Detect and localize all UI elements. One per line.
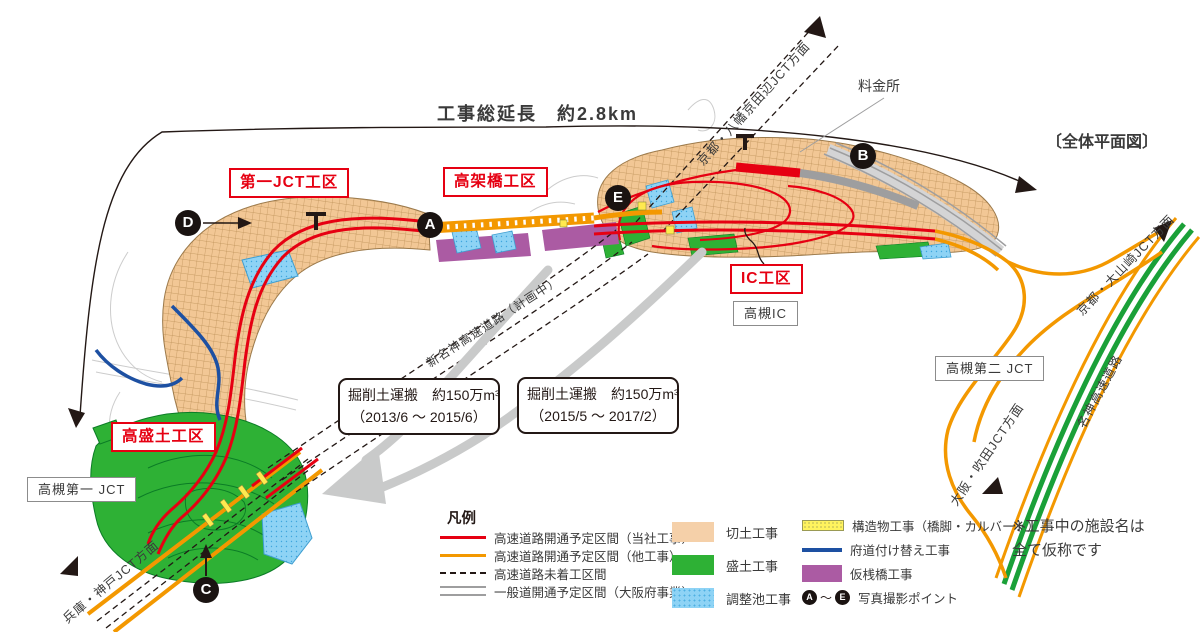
arrow-hyogo-kobe [60, 556, 78, 576]
callout-excavation-1: 掘削土運搬 約150万m³ （2013/6 ～ 2015/6） [338, 378, 500, 435]
plan-view-title: 〔全体平面図〕 [1046, 128, 1158, 152]
note-line-2: 全て仮称です [1012, 539, 1145, 563]
facility-takatsuki-daini-jct: 高槻第二 JCT [935, 356, 1044, 381]
tilde: ～ [820, 589, 832, 606]
facility-takatsuki-ic: 高槻IC [733, 301, 798, 326]
legend-line-items: 高速道路開通予定区間（当社工事） 高速道路開通予定区間（他工事） 高速道路未着工… [440, 528, 694, 600]
legend-label: 一般道開通予定区間（大阪府事業） [494, 582, 694, 601]
legend-row-pref-road: 府道付け替え工事 [802, 540, 1040, 559]
legend-area-items: 切土工事 盛土工事 調整池工事 [672, 522, 791, 621]
soil-arrow-head [322, 446, 386, 504]
legend-row-fill-earth: 盛土工事 [672, 555, 791, 575]
legend-row-pond: 調整池工事 [672, 588, 791, 608]
legend-label: 高速道路開通予定区間（他工事） [494, 546, 682, 565]
zone-label-daiichi-jct: 第一JCT工区 [229, 168, 349, 198]
legend-row-temp-bridge: 仮桟橋工事 [802, 564, 1040, 583]
facility-takatsuki-daiichi-jct: 高槻第一 JCT [27, 477, 136, 502]
blue-patch-swatch [672, 588, 714, 608]
dashed-line-swatch [440, 572, 486, 574]
callout-period: （2013/6 ～ 2015/6） [348, 407, 490, 429]
callout-excavation-2: 掘削土運搬 約150万m³ （2015/5 ～ 2017/2） [517, 377, 679, 434]
toll-gate-label: 料金所 [858, 76, 900, 96]
photo-point-range: A ～ E [802, 589, 850, 606]
photo-point-d: D [175, 210, 201, 236]
tan-patch-swatch [672, 522, 714, 542]
total-length-label: 工事総延長 約2.8km [437, 100, 638, 126]
legend-label: 仮桟橋工事 [850, 564, 913, 583]
legend-label: 調整池工事 [726, 589, 791, 608]
legend-row-structure: 構造物工事（橋脚・カルバート） [802, 516, 1040, 535]
zone-label-embankment: 高盛土工区 [111, 422, 216, 452]
purple-patch-swatch [802, 565, 842, 582]
legend-label: 切土工事 [726, 523, 778, 542]
gray-line-swatch [440, 586, 486, 596]
arc-arrow-left [68, 408, 85, 428]
legend-row-other-work: 高速道路開通予定区間（他工事） [440, 546, 694, 564]
legend-note: ※工事中の施設名は 全て仮称です [1012, 515, 1145, 563]
photo-point-b: B [850, 143, 876, 169]
legend-label: 高速道路開通予定区間（当社工事） [494, 528, 694, 547]
photo-point-a: A [417, 212, 443, 238]
callout-text: 掘削土運搬 約150万m³ [348, 385, 490, 407]
construction-plan-map: 工事総延長 約2.8km 〔全体平面図〕 料金所 第一JCT工区 高架橋工区 I… [0, 0, 1200, 632]
arrow-osaka-suita [982, 477, 1003, 494]
red-line-swatch [440, 536, 486, 539]
photo-point-e-small: E [835, 590, 850, 605]
legend-label: 府道付け替え工事 [850, 540, 950, 559]
legend-header: 凡例 [447, 507, 476, 528]
legend-row-general-road: 一般道開通予定区間（大阪府事業） [440, 582, 694, 600]
legend-other-items: 構造物工事（橋脚・カルバート） 府道付け替え工事 仮桟橋工事 A ～ E 写真撮… [802, 516, 1040, 612]
yellow-bar-swatch [802, 520, 844, 531]
zone-label-ic: IC工区 [730, 264, 803, 294]
legend-row-cut-earth: 切土工事 [672, 522, 791, 542]
callout-period: （2015/5 ～ 2017/2） [527, 406, 669, 428]
photo-point-a-small: A [802, 590, 817, 605]
legend-row-unbuilt: 高速道路未着工区間 [440, 564, 694, 582]
legend-row-photo-points: A ～ E 写真撮影ポイント [802, 588, 1040, 607]
legend-label: 盛土工事 [726, 556, 778, 575]
note-line-1: ※工事中の施設名は [1012, 515, 1145, 539]
arrow-kyoto-yawata [804, 16, 826, 38]
photo-point-c: C [193, 577, 219, 603]
legend-row-own-work: 高速道路開通予定区間（当社工事） [440, 528, 694, 546]
navy-line-swatch [802, 548, 842, 552]
orange-line-swatch [440, 554, 486, 557]
green-patch-swatch [672, 555, 714, 575]
legend-label: 写真撮影ポイント [858, 588, 958, 607]
legend-label: 高速道路未着工区間 [494, 564, 607, 583]
callout-text: 掘削土運搬 約150万m³ [527, 384, 669, 406]
photo-point-e: E [605, 185, 631, 211]
zone-label-viaduct: 高架橋工区 [443, 167, 548, 197]
arc-arrow-right [1015, 176, 1037, 193]
